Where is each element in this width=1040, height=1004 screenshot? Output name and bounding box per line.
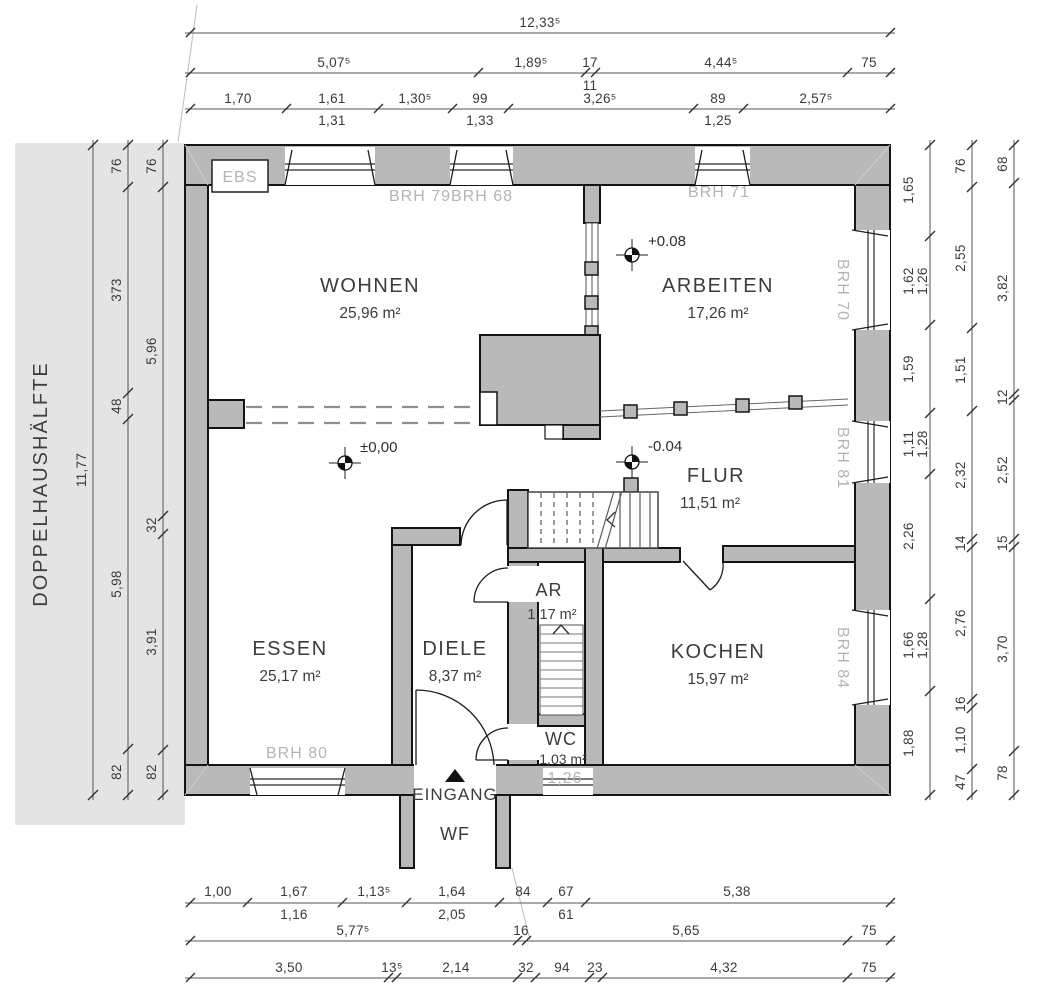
dim-label: 11,77: [74, 453, 89, 487]
chimney-block: [480, 335, 600, 439]
dim-label: 1,30⁵: [398, 91, 431, 106]
dim-label: 99: [472, 91, 488, 106]
cellar-staircase: [540, 625, 583, 715]
dim-label: 75: [861, 923, 877, 938]
window-brh81: [852, 421, 890, 483]
dim-label: 32: [144, 517, 159, 533]
dim-label: 5,65: [672, 923, 699, 938]
ar-wc-separator: [538, 714, 585, 726]
dim-label: 1,51: [953, 356, 968, 383]
core-east-wall: [585, 546, 603, 765]
dim-label: 12: [995, 389, 1010, 405]
room-kochen-area: 15,97 m²: [687, 671, 748, 688]
wf-label: WF: [440, 824, 470, 844]
room-flur-area: 11,51 m²: [680, 495, 740, 512]
dim-label: 89: [710, 91, 726, 106]
dim-label: 78: [995, 765, 1010, 781]
dim-label: 4,44⁵: [704, 55, 737, 70]
dim-label: 3,82: [995, 274, 1010, 301]
dim-label: 5,77⁵: [336, 923, 369, 938]
dim-label: 2,05: [438, 907, 465, 922]
dim-label: 1,31: [318, 113, 345, 128]
ebs-label: EBS: [222, 169, 257, 186]
brh71-label: BRH 71: [688, 184, 750, 201]
dim-label: 16: [953, 696, 968, 712]
dim-label: 75: [861, 55, 877, 70]
dim-label: 82: [144, 764, 159, 780]
dim-label: 3,26⁵: [583, 91, 616, 106]
dim-label: 1,67: [280, 884, 307, 899]
dim-label: 1,28: [915, 430, 930, 457]
dim-label: 5,07⁵: [317, 55, 350, 70]
dim-label: 4,32: [710, 960, 737, 975]
room-flur: FLUR: [687, 465, 745, 487]
dim-label: 1,61: [318, 91, 345, 106]
floor-plan-drawing: DOPPELHAUSHÄLFTE: [0, 0, 1040, 1004]
dim-label: 1,88: [901, 729, 916, 756]
dim-label: 5,96: [144, 337, 159, 364]
room-kochen: KOCHEN: [671, 641, 766, 663]
dim-chain-top: 12,33⁵ 5,07⁵ 1,89⁵ 17 11 4,44⁵ 75 1,70 1…: [185, 15, 895, 128]
dim-label: 15: [995, 535, 1010, 551]
porch-east-wall: [496, 795, 510, 868]
eingang-label: EINGANG: [412, 785, 497, 804]
dim-label: 12,33⁵: [519, 15, 560, 30]
dim-label: 2,55: [953, 244, 968, 271]
dim-label: 5,98: [109, 570, 124, 597]
window-brh84: [852, 610, 890, 705]
dim-label: 2,76: [953, 609, 968, 636]
brh68-label: BRH 68: [451, 188, 513, 205]
room-ar-area: 1,17 m²: [527, 607, 576, 623]
dim-label: 1,70: [224, 91, 251, 106]
room-wc-area: 1,03 m²: [539, 751, 587, 767]
brh79-label: BRH 79: [389, 188, 451, 205]
diele-north-wall: [392, 528, 460, 545]
dim-label: 2,57⁵: [799, 91, 832, 106]
window-brh79: [285, 147, 375, 185]
brh81-label: BRH 81: [834, 427, 851, 489]
brh70-label: BRH 70: [834, 259, 851, 321]
dim-label: 67: [558, 884, 574, 899]
brh84-label: BRH 84: [834, 627, 851, 689]
brh80-label: BRH 80: [266, 745, 328, 762]
dim-label: 2,32: [953, 461, 968, 488]
level-arbeiten: +0.08: [648, 233, 686, 250]
dim-label: 373: [109, 278, 124, 301]
room-ar: AR: [535, 580, 562, 600]
site-label: DOPPELHAUSHÄLFTE: [30, 361, 52, 606]
dim-label: 82: [109, 764, 124, 780]
room-diele: DIELE: [422, 638, 487, 660]
window-brh68: [450, 147, 513, 185]
dim-label: 1,11: [901, 431, 916, 457]
room-arbeiten-area: 17,26 m²: [687, 305, 748, 322]
dim-label: 3,70: [995, 635, 1010, 662]
dim-label: 5,38: [723, 884, 750, 899]
floor-plan-svg: DOPPELHAUSHÄLFTE: [0, 0, 1040, 1004]
wc-sill-label: 1,26: [547, 770, 582, 787]
room-wohnen: WOHNEN: [320, 275, 420, 297]
room-wohnen-area: 25,96 m²: [339, 305, 400, 322]
dim-label: 75: [861, 960, 877, 975]
flur-south-wall-right: [723, 546, 855, 562]
wall-stub-north: [584, 185, 600, 223]
dim-label: 1,28: [915, 631, 930, 658]
dim-label: 1,26: [915, 267, 930, 294]
dim-label: 84: [515, 884, 531, 899]
dim-label: 76: [144, 158, 159, 174]
window-brh70: [852, 230, 890, 330]
wall-west: [185, 185, 208, 765]
building: EBS: [185, 145, 890, 868]
dim-label: 3,50: [275, 960, 302, 975]
room-arbeiten: ARBEITEN: [662, 275, 774, 297]
window-brh80: [250, 768, 345, 795]
dim-label: 61: [558, 907, 574, 922]
level-flur: -0.04: [648, 438, 682, 455]
dim-label: 1,13⁵: [357, 884, 390, 899]
partition-post: [585, 296, 598, 309]
room-diele-area: 8,37 m²: [429, 668, 482, 685]
dim-label: 1,10: [953, 726, 968, 753]
room-essen-area: 25,17 m²: [259, 668, 320, 685]
dim-label: 1,16: [280, 907, 307, 922]
dim-label: 1,33: [466, 113, 493, 128]
dim-chain-right: 1,65 1,62 1,59 1,11 2,26 1,66 1,88 1,26 …: [901, 140, 1019, 800]
dim-label: 76: [109, 158, 124, 174]
dim-label: 1,64: [438, 884, 466, 899]
dim-label: 1,89⁵: [514, 55, 547, 70]
dim-label: 17: [582, 55, 598, 70]
dim-label: 2,52: [995, 456, 1010, 483]
windows-east: [852, 230, 890, 705]
dim-label: 13⁵: [381, 960, 403, 975]
dim-label: 32: [518, 960, 534, 975]
room-essen: ESSEN: [252, 638, 327, 660]
dim-label: 1,25: [704, 113, 731, 128]
dim-label: 1,00: [204, 884, 231, 899]
dim-label: 94: [554, 960, 570, 975]
dim-label: 2,26: [901, 522, 916, 549]
stair-west-wall: [508, 490, 528, 548]
partition-post: [585, 262, 598, 275]
dim-label: 48: [109, 398, 124, 414]
wall-stub-west: [208, 400, 244, 428]
main-staircase: [528, 491, 658, 549]
dim-label: 14: [953, 535, 968, 551]
room-wc: WC: [545, 729, 577, 749]
dim-label: 68: [995, 156, 1010, 172]
ebs-box: EBS: [212, 160, 268, 192]
dim-chain-bottom: 1,00 1,67 1,13⁵ 1,64 84 67 5,38 1,16 2,0…: [185, 884, 895, 982]
diele-west-wall: [392, 545, 412, 765]
dim-label: 1,62: [901, 267, 916, 294]
porch-west-wall: [400, 795, 414, 868]
level-essen: ±0,00: [360, 439, 397, 456]
dim-label: 3,91: [144, 628, 159, 655]
dim-label: 1,65: [901, 176, 916, 203]
dim-label: 1,66: [901, 631, 916, 658]
window-brh71: [695, 147, 750, 185]
wc-door-opening: [506, 724, 540, 760]
dim-label: 16: [513, 923, 529, 938]
dim-label: 2,14: [442, 960, 470, 975]
dim-label: 76: [953, 158, 968, 174]
dim-label: 47: [953, 774, 968, 790]
free-post: [624, 478, 638, 492]
dim-label: 1,59: [901, 355, 916, 382]
dim-label: 23: [587, 960, 603, 975]
